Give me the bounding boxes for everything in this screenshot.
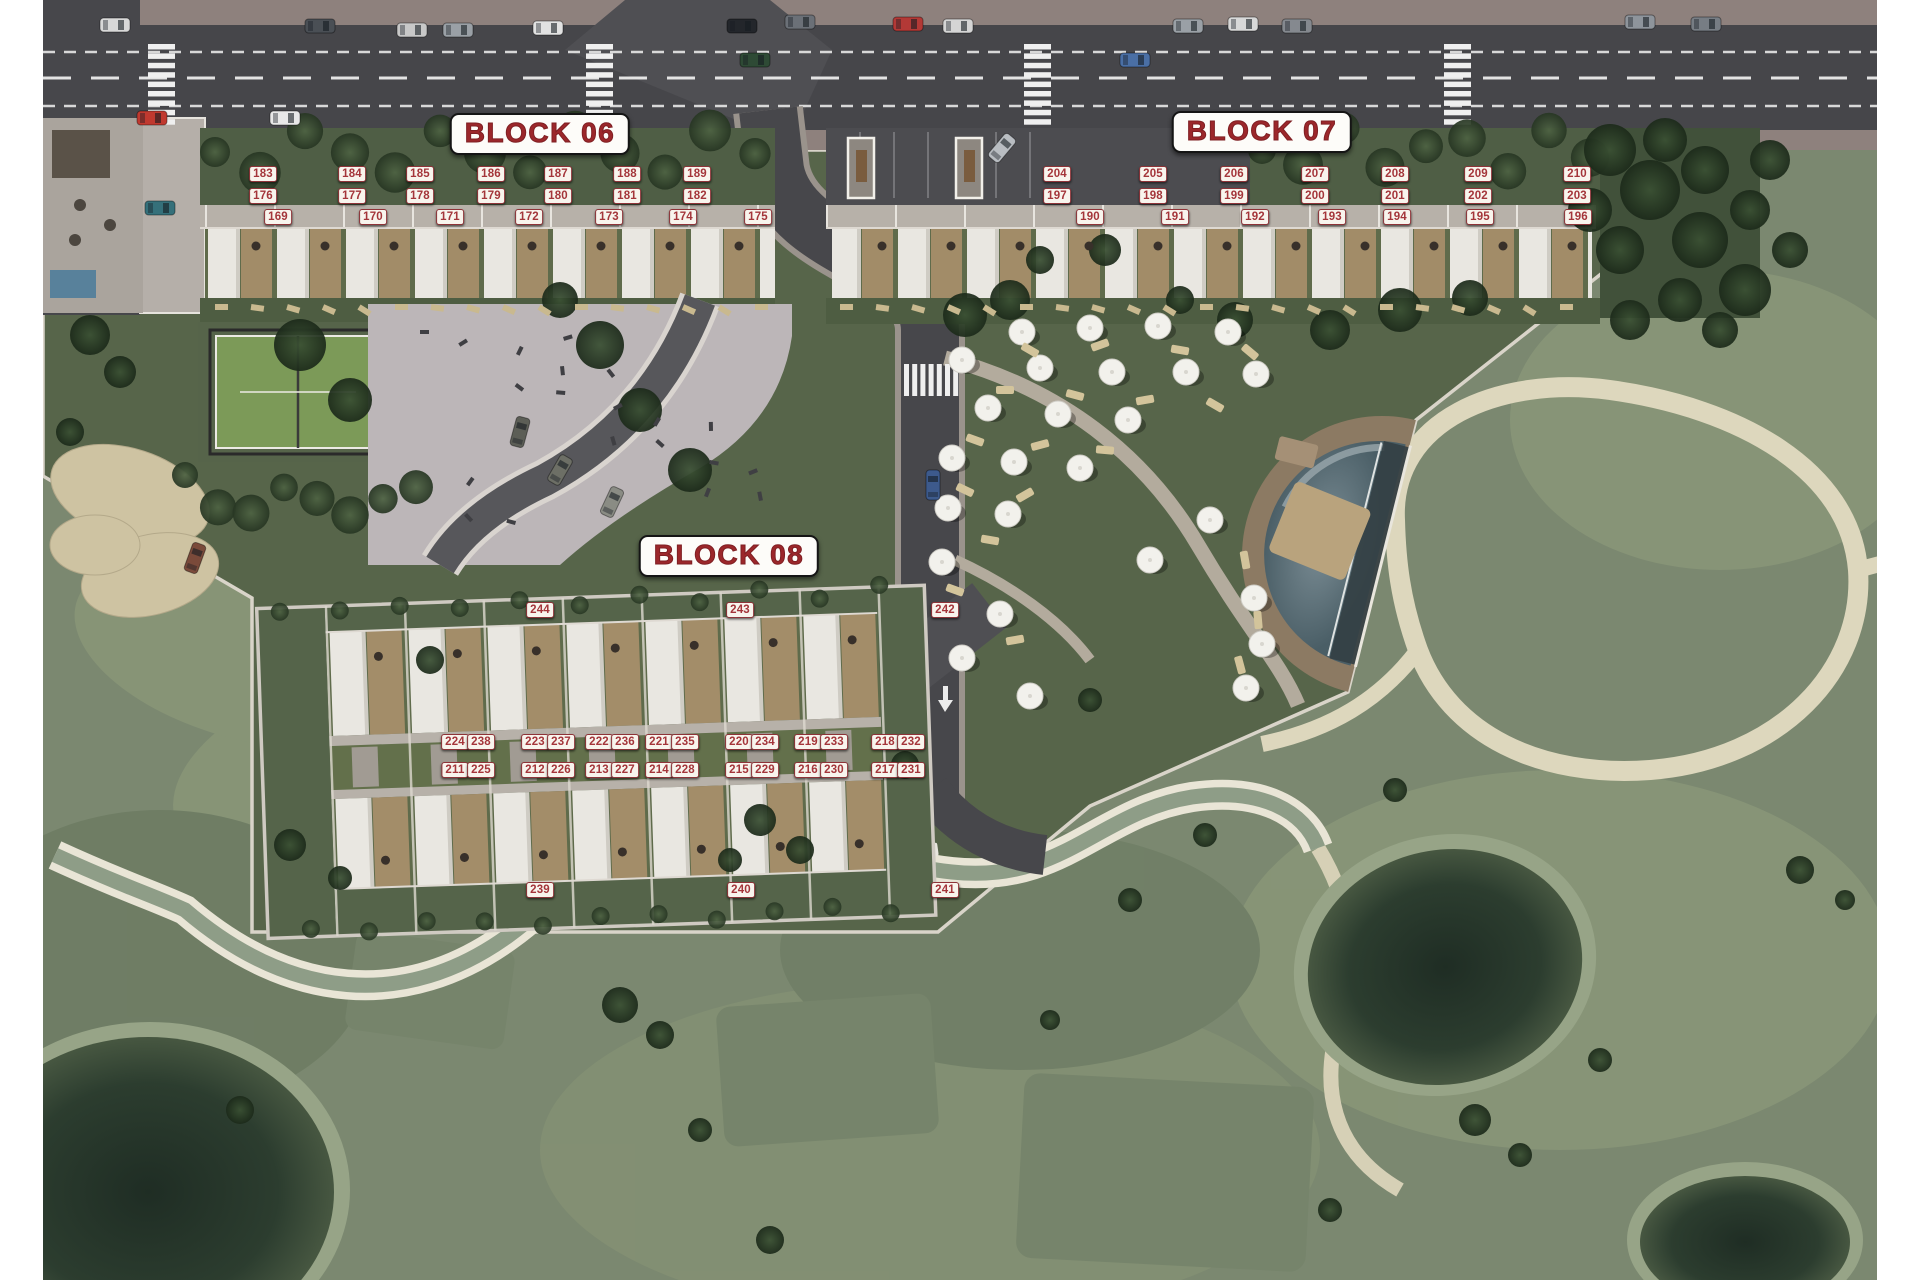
block-07-title: BLOCK 07 — [1172, 111, 1352, 153]
site-plan-rendering — [0, 0, 1920, 1280]
block-08-title: BLOCK 08 — [639, 535, 819, 577]
block-08-buildings — [257, 585, 936, 938]
corner-terrace — [43, 118, 205, 313]
site-plan: 1831841851861871881891761771781791801811… — [0, 0, 1920, 1280]
block-06-title: BLOCK 06 — [450, 113, 630, 155]
